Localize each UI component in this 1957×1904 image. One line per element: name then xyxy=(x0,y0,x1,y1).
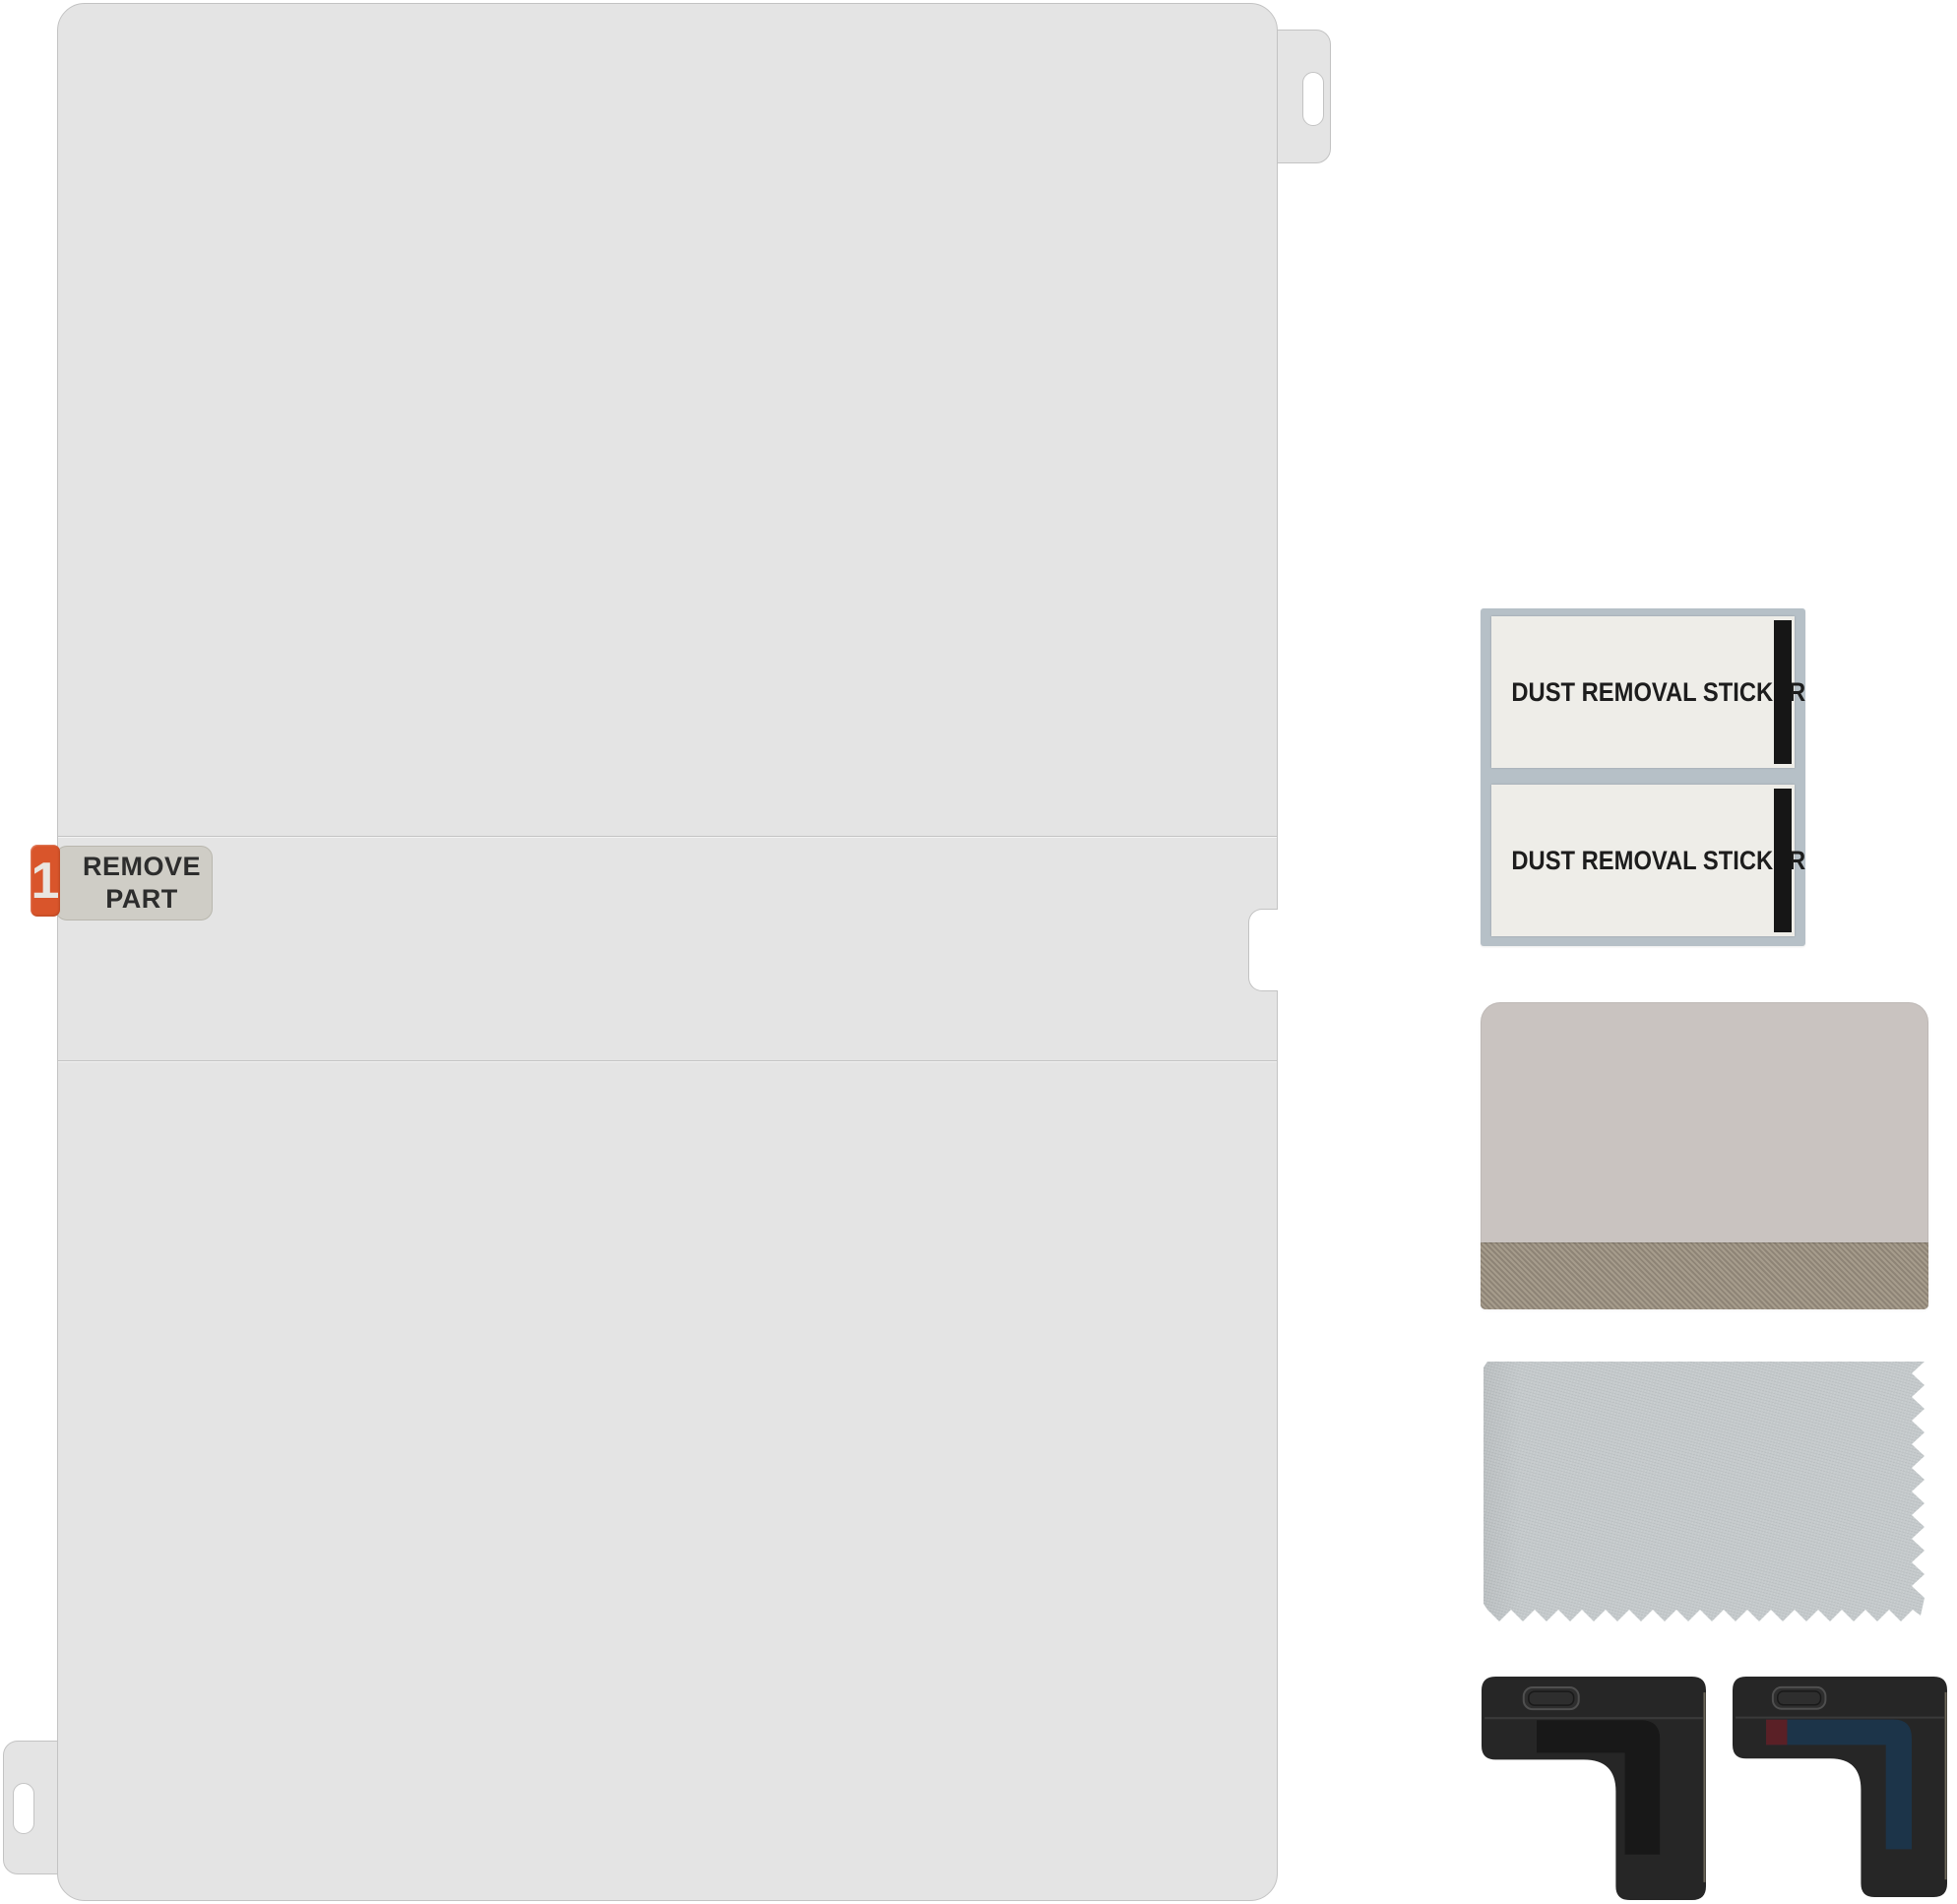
film-edge-notch xyxy=(1248,909,1278,991)
corner-guide-left-inner xyxy=(1537,1720,1660,1855)
film-tab-slot-top xyxy=(1302,72,1324,126)
corner-guide-right-inner xyxy=(1766,1720,1912,1850)
dust-removal-sticker-2-label: DUST REMOVAL STICKER xyxy=(1491,846,1852,876)
screen-protector-kit-photo: REMOVE PART 1 DUST REMOVAL STICKER DUST … xyxy=(0,0,1957,1904)
corner-guide-right-accent xyxy=(1766,1720,1787,1745)
dust-removal-sticker-1-label: DUST REMOVAL STICKER xyxy=(1491,677,1852,708)
dust-sticker-1-end-bar xyxy=(1774,620,1792,764)
dust-sticker-2-end-bar xyxy=(1774,789,1792,932)
dust-removal-sticker-1: DUST REMOVAL STICKER xyxy=(1491,616,1795,768)
corner-guide-right xyxy=(1733,1677,1947,1897)
dust-removal-sticker-1-text: DUST REMOVAL STICKER xyxy=(1511,677,1805,708)
remove-part-label-line2: PART xyxy=(105,883,178,916)
step-number: 1 xyxy=(32,856,60,907)
film-fold-line-top xyxy=(58,836,1277,839)
remove-part-label: REMOVE PART xyxy=(55,846,213,920)
dust-removal-sticker-sheet: DUST REMOVAL STICKER DUST REMOVAL STICKE… xyxy=(1481,608,1805,946)
step-number-tab: 1 xyxy=(31,845,60,917)
remove-part-label-line1: REMOVE xyxy=(83,851,201,883)
film-fold-line-bottom xyxy=(58,1060,1277,1063)
remove-part-sticker: REMOVE PART 1 xyxy=(31,842,213,922)
corner-guide-left xyxy=(1482,1677,1706,1900)
film-tab-slot-bottom xyxy=(13,1783,34,1834)
microfiber-cloth xyxy=(1482,1362,1925,1621)
screen-protector-film xyxy=(57,3,1278,1901)
dust-removal-sticker-2: DUST REMOVAL STICKER xyxy=(1491,785,1795,936)
dust-removal-sticker-2-text: DUST REMOVAL STICKER xyxy=(1511,846,1805,876)
squeegee-felt-edge xyxy=(1481,1242,1928,1309)
squeegee-card xyxy=(1481,1002,1928,1309)
corner-guide-right-body xyxy=(1733,1677,1947,1897)
corner-guide-left-body xyxy=(1482,1677,1706,1900)
